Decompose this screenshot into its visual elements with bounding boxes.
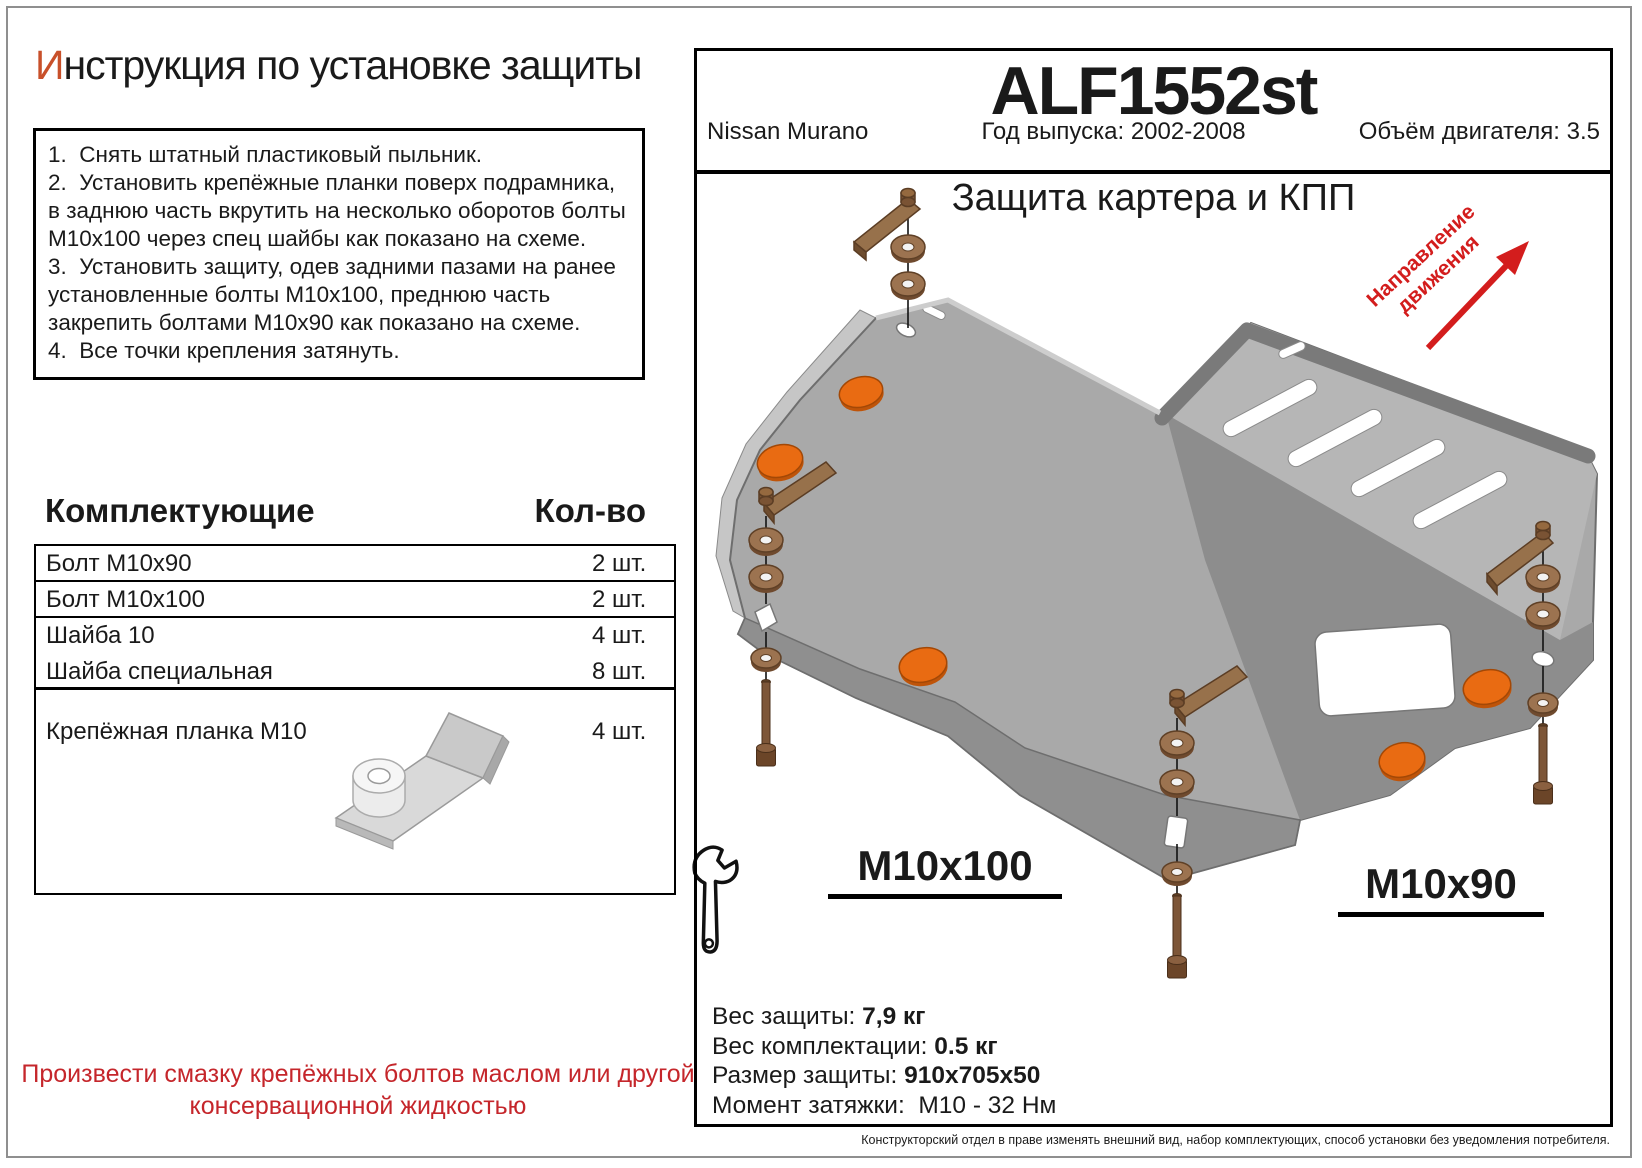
spec-row: Вес защиты: 7,9 кг xyxy=(712,1002,1056,1032)
instruction-step: 4. Все точки крепления затянуть. xyxy=(48,337,628,365)
table-row: Шайба специальная 8 шт. xyxy=(36,654,674,690)
specs-block: Вес защиты: 7,9 кг Вес комплектации: 0.5… xyxy=(712,1002,1056,1120)
instruction-sheet: { "left": { "title_first": "И", "title_r… xyxy=(0,0,1642,1168)
table-row: Болт М10х100 2 шт. xyxy=(36,582,674,618)
part-qty: 2 шт. xyxy=(592,550,646,578)
bracket-part-image xyxy=(331,698,526,868)
spec-label: Момент затяжки: xyxy=(712,1092,918,1119)
table-row: Болт М10х90 2 шт. xyxy=(36,546,674,582)
spec-value: М10 - 32 Нм xyxy=(918,1092,1056,1119)
engine-volume: Объём двигателя: 3.5 xyxy=(1359,118,1600,146)
title-text: нструкция по установке защиты xyxy=(63,42,641,88)
vehicle-years: Год выпуска: 2002-2008 xyxy=(982,118,1246,146)
spec-label: Вес комплектации: xyxy=(712,1033,934,1060)
spec-value: 910х705х50 xyxy=(904,1062,1040,1089)
part-qty: 4 шт. xyxy=(592,622,646,650)
warning-note: Произвести смазку крепёжных болтов масло… xyxy=(14,1058,702,1122)
table-row: Крепёжная планка М10 4 шт. xyxy=(36,690,674,890)
title-accent-letter: И xyxy=(35,42,63,88)
part-name: Болт М10х90 xyxy=(46,550,192,578)
instruction-step: 3. Установить защиту, одев задними пазам… xyxy=(48,253,628,337)
part-name: Болт М10х100 xyxy=(46,586,205,614)
table-row: Шайба 10 4 шт. xyxy=(36,618,674,654)
parts-header-name: Комплектующие xyxy=(45,492,315,530)
spec-row: Размер защиты: 910х705х50 xyxy=(712,1061,1056,1091)
part-name: Шайба специальная xyxy=(46,658,273,686)
header-divider xyxy=(694,170,1613,174)
vehicle-name: Nissan Murano xyxy=(707,118,868,146)
parts-header-qty: Кол-во xyxy=(535,492,646,530)
spec-label: Вес защиты: xyxy=(712,1003,862,1030)
part-qty: 8 шт. xyxy=(592,658,646,686)
bolt-label-rear: M10x90 xyxy=(1338,860,1544,917)
part-qty: 2 шт. xyxy=(592,586,646,614)
parts-table: Болт М10х90 2 шт. Болт М10х100 2 шт. Шай… xyxy=(34,544,676,895)
parts-table-header: Комплектующие Кол-во xyxy=(34,492,676,530)
part-name: Шайба 10 xyxy=(46,622,155,650)
manufacturer-disclaimer: Конструкторский отдел в праве изменять в… xyxy=(700,1133,1610,1147)
instructions-box: 1. Снять штатный пластиковый пыльник. 2.… xyxy=(33,128,645,380)
bolt-label-front: M10x100 xyxy=(828,842,1062,899)
spec-value: 0.5 кг xyxy=(934,1033,997,1060)
part-name: Крепёжная планка М10 xyxy=(46,718,307,746)
instruction-step: 1. Снять штатный пластиковый пыльник. xyxy=(48,141,628,169)
spec-row: Момент затяжки: М10 - 32 Нм xyxy=(712,1091,1056,1121)
part-qty: 4 шт. xyxy=(592,718,646,746)
spec-value: 7,9 кг xyxy=(862,1003,925,1030)
page-title: Инструкция по установке защиты xyxy=(35,42,655,89)
instruction-step: 2. Установить крепёжные планки поверх по… xyxy=(48,169,628,253)
vehicle-meta-row: Nissan Murano Год выпуска: 2002-2008 Объ… xyxy=(694,118,1613,146)
spec-label: Размер защиты: xyxy=(712,1062,904,1089)
spec-row: Вес комплектации: 0.5 кг xyxy=(712,1032,1056,1062)
